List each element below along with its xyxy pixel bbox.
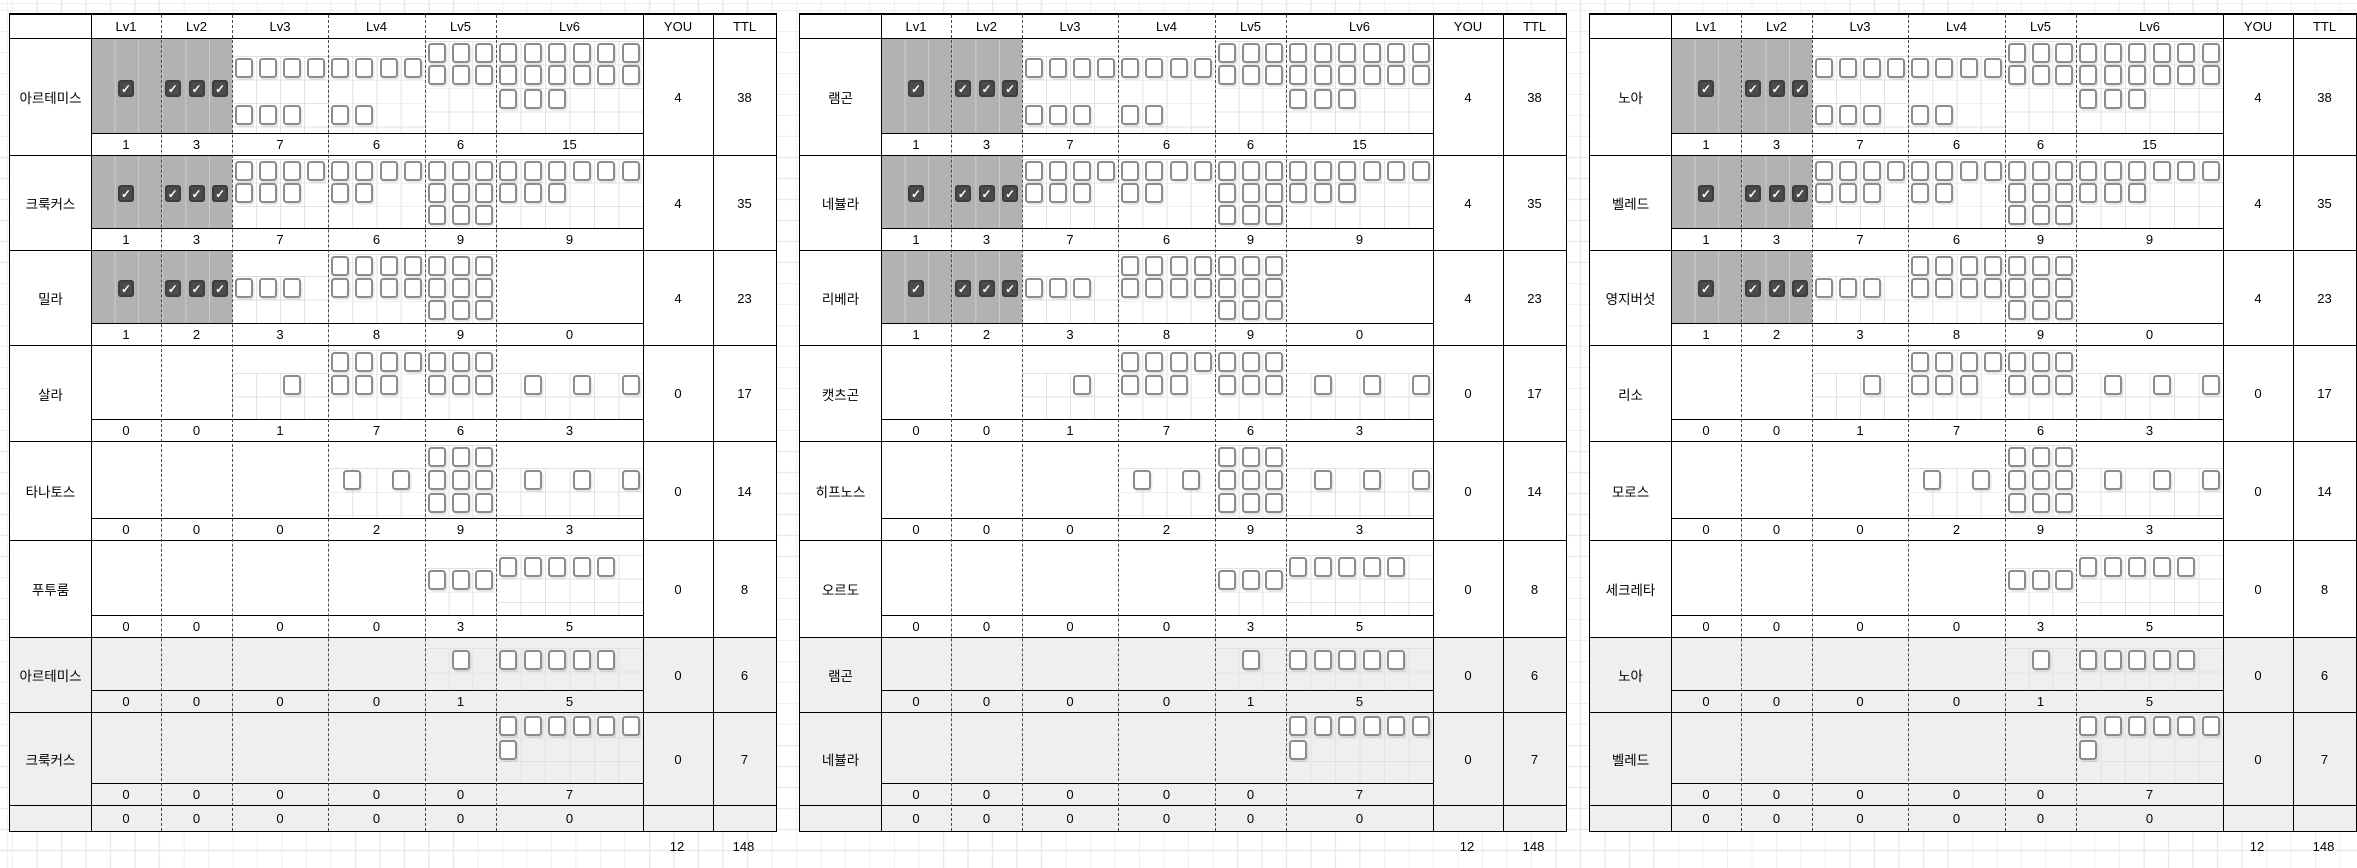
checkbox-unchecked[interactable]: [475, 570, 493, 590]
checkbox-unchecked[interactable]: [1097, 161, 1115, 181]
checkbox-unchecked[interactable]: [622, 716, 640, 736]
checkbox-checked[interactable]: ✓: [212, 185, 228, 202]
checkbox-unchecked[interactable]: [2055, 183, 2073, 203]
checkbox-unchecked[interactable]: [1289, 716, 1307, 736]
checkbox-checked[interactable]: ✓: [908, 80, 924, 97]
checkbox-unchecked[interactable]: [2128, 43, 2146, 63]
checkbox-unchecked[interactable]: [2055, 43, 2073, 63]
checkbox-unchecked[interactable]: [499, 650, 517, 670]
checkbox-unchecked[interactable]: [1242, 375, 1260, 395]
checkbox-unchecked[interactable]: [428, 493, 446, 513]
checkbox-unchecked[interactable]: [1314, 470, 1332, 490]
checkbox-unchecked[interactable]: [307, 161, 325, 181]
checkbox-unchecked[interactable]: [1265, 278, 1283, 298]
checkbox-unchecked[interactable]: [2202, 65, 2220, 85]
checkbox-unchecked[interactable]: [1935, 278, 1953, 298]
checkbox-unchecked[interactable]: [2055, 300, 2073, 320]
checkbox-checked[interactable]: ✓: [955, 280, 971, 297]
checkbox-unchecked[interactable]: [2008, 43, 2026, 63]
checkbox-unchecked[interactable]: [2104, 161, 2122, 181]
checkbox-unchecked[interactable]: [1815, 161, 1833, 181]
checkbox-unchecked[interactable]: [1170, 256, 1188, 276]
checkbox-unchecked[interactable]: [1073, 183, 1091, 203]
checkbox-unchecked[interactable]: [2032, 447, 2050, 467]
checkbox-unchecked[interactable]: [475, 43, 493, 63]
checkbox-unchecked[interactable]: [1145, 183, 1163, 203]
checkbox-unchecked[interactable]: [573, 470, 591, 490]
checkbox-unchecked[interactable]: [2104, 183, 2122, 203]
checkbox-unchecked[interactable]: [1863, 105, 1881, 125]
checkbox-checked[interactable]: ✓: [1698, 280, 1714, 297]
checkbox-unchecked[interactable]: [2079, 557, 2097, 577]
checkbox-unchecked[interactable]: [1289, 557, 1307, 577]
checkbox-unchecked[interactable]: [331, 161, 349, 181]
checkbox-unchecked[interactable]: [1911, 278, 1929, 298]
checkbox-unchecked[interactable]: [1242, 256, 1260, 276]
checkbox-unchecked[interactable]: [1265, 183, 1283, 203]
checkbox-unchecked[interactable]: [475, 65, 493, 85]
checkbox-unchecked[interactable]: [2128, 650, 2146, 670]
checkbox-unchecked[interactable]: [2055, 570, 2073, 590]
checkbox-unchecked[interactable]: [1387, 161, 1405, 181]
checkbox-unchecked[interactable]: [1265, 65, 1283, 85]
checkbox-checked[interactable]: ✓: [908, 185, 924, 202]
checkbox-unchecked[interactable]: [1170, 161, 1188, 181]
checkbox-unchecked[interactable]: [452, 161, 470, 181]
checkbox-unchecked[interactable]: [622, 375, 640, 395]
checkbox-unchecked[interactable]: [1412, 65, 1430, 85]
checkbox-unchecked[interactable]: [1145, 278, 1163, 298]
checkbox-unchecked[interactable]: [380, 352, 398, 372]
checkbox-unchecked[interactable]: [1363, 375, 1381, 395]
checkbox-unchecked[interactable]: [475, 447, 493, 467]
checkbox-unchecked[interactable]: [1839, 105, 1857, 125]
checkbox-unchecked[interactable]: [2153, 650, 2171, 670]
checkbox-unchecked[interactable]: [1265, 161, 1283, 181]
checkbox-unchecked[interactable]: [475, 256, 493, 276]
checkbox-unchecked[interactable]: [2177, 650, 2195, 670]
checkbox-unchecked[interactable]: [2008, 161, 2026, 181]
checkbox-unchecked[interactable]: [475, 205, 493, 225]
checkbox-unchecked[interactable]: [1073, 375, 1091, 395]
checkbox-unchecked[interactable]: [380, 278, 398, 298]
checkbox-checked[interactable]: ✓: [979, 80, 995, 97]
checkbox-checked[interactable]: ✓: [165, 185, 181, 202]
checkbox-unchecked[interactable]: [1025, 105, 1043, 125]
checkbox-unchecked[interactable]: [2008, 570, 2026, 590]
checkbox-unchecked[interactable]: [331, 58, 349, 78]
checkbox-unchecked[interactable]: [2032, 161, 2050, 181]
checkbox-unchecked[interactable]: [428, 375, 446, 395]
checkbox-unchecked[interactable]: [1218, 352, 1236, 372]
checkbox-unchecked[interactable]: [1363, 716, 1381, 736]
checkbox-unchecked[interactable]: [2177, 43, 2195, 63]
checkbox-unchecked[interactable]: [1863, 183, 1881, 203]
checkbox-unchecked[interactable]: [1073, 161, 1091, 181]
checkbox-unchecked[interactable]: [2008, 65, 2026, 85]
checkbox-unchecked[interactable]: [1218, 278, 1236, 298]
checkbox-unchecked[interactable]: [1049, 58, 1067, 78]
checkbox-unchecked[interactable]: [2128, 716, 2146, 736]
checkbox-unchecked[interactable]: [452, 447, 470, 467]
checkbox-unchecked[interactable]: [499, 557, 517, 577]
checkbox-checked[interactable]: ✓: [1769, 80, 1785, 97]
checkbox-unchecked[interactable]: [331, 375, 349, 395]
checkbox-unchecked[interactable]: [259, 183, 277, 203]
checkbox-unchecked[interactable]: [1121, 183, 1139, 203]
checkbox-unchecked[interactable]: [1194, 352, 1212, 372]
checkbox-unchecked[interactable]: [1839, 278, 1857, 298]
checkbox-unchecked[interactable]: [2128, 89, 2146, 109]
checkbox-unchecked[interactable]: [1863, 161, 1881, 181]
checkbox-unchecked[interactable]: [2055, 352, 2073, 372]
checkbox-checked[interactable]: ✓: [212, 280, 228, 297]
checkbox-unchecked[interactable]: [283, 278, 301, 298]
checkbox-unchecked[interactable]: [1242, 570, 1260, 590]
checkbox-unchecked[interactable]: [428, 570, 446, 590]
checkbox-unchecked[interactable]: [1182, 470, 1200, 490]
checkbox-unchecked[interactable]: [1363, 65, 1381, 85]
checkbox-unchecked[interactable]: [2153, 716, 2171, 736]
checkbox-unchecked[interactable]: [1218, 161, 1236, 181]
checkbox-checked[interactable]: ✓: [165, 80, 181, 97]
checkbox-unchecked[interactable]: [1984, 58, 2002, 78]
checkbox-unchecked[interactable]: [355, 375, 373, 395]
checkbox-unchecked[interactable]: [1387, 65, 1405, 85]
checkbox-unchecked[interactable]: [1218, 375, 1236, 395]
checkbox-unchecked[interactable]: [2032, 205, 2050, 225]
checkbox-unchecked[interactable]: [1387, 716, 1405, 736]
checkbox-unchecked[interactable]: [1289, 89, 1307, 109]
checkbox-unchecked[interactable]: [452, 352, 470, 372]
checkbox-unchecked[interactable]: [1242, 470, 1260, 490]
checkbox-unchecked[interactable]: [1412, 43, 1430, 63]
checkbox-unchecked[interactable]: [428, 183, 446, 203]
checkbox-unchecked[interactable]: [428, 278, 446, 298]
checkbox-unchecked[interactable]: [1363, 557, 1381, 577]
checkbox-unchecked[interactable]: [259, 278, 277, 298]
checkbox-unchecked[interactable]: [1314, 161, 1332, 181]
checkbox-unchecked[interactable]: [1960, 161, 1978, 181]
checkbox-unchecked[interactable]: [2032, 375, 2050, 395]
checkbox-checked[interactable]: ✓: [1745, 280, 1761, 297]
checkbox-unchecked[interactable]: [2153, 65, 2171, 85]
checkbox-unchecked[interactable]: [1121, 352, 1139, 372]
checkbox-checked[interactable]: ✓: [1769, 280, 1785, 297]
checkbox-unchecked[interactable]: [1412, 161, 1430, 181]
checkbox-unchecked[interactable]: [499, 183, 517, 203]
checkbox-unchecked[interactable]: [2079, 183, 2097, 203]
checkbox-unchecked[interactable]: [1984, 278, 2002, 298]
checkbox-unchecked[interactable]: [404, 278, 422, 298]
checkbox-unchecked[interactable]: [622, 161, 640, 181]
checkbox-unchecked[interactable]: [1338, 183, 1356, 203]
checkbox-unchecked[interactable]: [452, 183, 470, 203]
checkbox-unchecked[interactable]: [524, 375, 542, 395]
checkbox-unchecked[interactable]: [1863, 375, 1881, 395]
checkbox-unchecked[interactable]: [2128, 557, 2146, 577]
checkbox-unchecked[interactable]: [548, 557, 566, 577]
checkbox-unchecked[interactable]: [392, 470, 410, 490]
checkbox-unchecked[interactable]: [1863, 58, 1881, 78]
checkbox-unchecked[interactable]: [1097, 58, 1115, 78]
checkbox-unchecked[interactable]: [2202, 43, 2220, 63]
checkbox-checked[interactable]: ✓: [955, 185, 971, 202]
checkbox-unchecked[interactable]: [428, 256, 446, 276]
checkbox-unchecked[interactable]: [452, 570, 470, 590]
checkbox-unchecked[interactable]: [1049, 278, 1067, 298]
checkbox-unchecked[interactable]: [1935, 183, 1953, 203]
checkbox-unchecked[interactable]: [1145, 375, 1163, 395]
checkbox-unchecked[interactable]: [1815, 183, 1833, 203]
checkbox-unchecked[interactable]: [2032, 300, 2050, 320]
checkbox-unchecked[interactable]: [235, 58, 253, 78]
checkbox-unchecked[interactable]: [1073, 105, 1091, 125]
checkbox-unchecked[interactable]: [1911, 161, 1929, 181]
checkbox-unchecked[interactable]: [331, 352, 349, 372]
checkbox-unchecked[interactable]: [597, 65, 615, 85]
checkbox-unchecked[interactable]: [1242, 650, 1260, 670]
checkbox-unchecked[interactable]: [1984, 352, 2002, 372]
checkbox-unchecked[interactable]: [548, 183, 566, 203]
checkbox-unchecked[interactable]: [1363, 650, 1381, 670]
checkbox-unchecked[interactable]: [499, 43, 517, 63]
checkbox-unchecked[interactable]: [524, 65, 542, 85]
checkbox-unchecked[interactable]: [2104, 557, 2122, 577]
checkbox-unchecked[interactable]: [2104, 716, 2122, 736]
checkbox-unchecked[interactable]: [1194, 278, 1212, 298]
checkbox-unchecked[interactable]: [428, 161, 446, 181]
checkbox-unchecked[interactable]: [355, 278, 373, 298]
checkbox-unchecked[interactable]: [1218, 300, 1236, 320]
checkbox-unchecked[interactable]: [2104, 650, 2122, 670]
checkbox-unchecked[interactable]: [2032, 65, 2050, 85]
checkbox-unchecked[interactable]: [1170, 58, 1188, 78]
checkbox-unchecked[interactable]: [1242, 161, 1260, 181]
checkbox-unchecked[interactable]: [597, 161, 615, 181]
checkbox-unchecked[interactable]: [548, 65, 566, 85]
checkbox-unchecked[interactable]: [452, 493, 470, 513]
checkbox-unchecked[interactable]: [1265, 447, 1283, 467]
checkbox-unchecked[interactable]: [428, 447, 446, 467]
checkbox-unchecked[interactable]: [1049, 161, 1067, 181]
checkbox-unchecked[interactable]: [1218, 43, 1236, 63]
checkbox-unchecked[interactable]: [1242, 65, 1260, 85]
checkbox-unchecked[interactable]: [2079, 161, 2097, 181]
checkbox-unchecked[interactable]: [524, 470, 542, 490]
checkbox-checked[interactable]: ✓: [118, 280, 134, 297]
checkbox-unchecked[interactable]: [2153, 161, 2171, 181]
checkbox-unchecked[interactable]: [452, 205, 470, 225]
checkbox-unchecked[interactable]: [573, 43, 591, 63]
checkbox-unchecked[interactable]: [475, 375, 493, 395]
checkbox-unchecked[interactable]: [2055, 256, 2073, 276]
checkbox-unchecked[interactable]: [1121, 161, 1139, 181]
checkbox-unchecked[interactable]: [1387, 557, 1405, 577]
checkbox-unchecked[interactable]: [499, 89, 517, 109]
checkbox-unchecked[interactable]: [452, 300, 470, 320]
checkbox-checked[interactable]: ✓: [979, 280, 995, 297]
checkbox-unchecked[interactable]: [2177, 161, 2195, 181]
checkbox-unchecked[interactable]: [1984, 161, 2002, 181]
checkbox-unchecked[interactable]: [1218, 65, 1236, 85]
checkbox-unchecked[interactable]: [1363, 43, 1381, 63]
checkbox-unchecked[interactable]: [1911, 183, 1929, 203]
checkbox-unchecked[interactable]: [1911, 256, 1929, 276]
checkbox-unchecked[interactable]: [1242, 43, 1260, 63]
checkbox-unchecked[interactable]: [331, 278, 349, 298]
checkbox-unchecked[interactable]: [1265, 205, 1283, 225]
checkbox-unchecked[interactable]: [2032, 650, 2050, 670]
checkbox-unchecked[interactable]: [1911, 352, 1929, 372]
checkbox-unchecked[interactable]: [1265, 352, 1283, 372]
checkbox-checked[interactable]: ✓: [1792, 80, 1808, 97]
checkbox-unchecked[interactable]: [2104, 43, 2122, 63]
checkbox-unchecked[interactable]: [1960, 58, 1978, 78]
checkbox-unchecked[interactable]: [331, 183, 349, 203]
checkbox-unchecked[interactable]: [573, 65, 591, 85]
checkbox-unchecked[interactable]: [235, 278, 253, 298]
checkbox-unchecked[interactable]: [283, 161, 301, 181]
checkbox-unchecked[interactable]: [548, 43, 566, 63]
checkbox-unchecked[interactable]: [2008, 278, 2026, 298]
checkbox-unchecked[interactable]: [2008, 183, 2026, 203]
checkbox-unchecked[interactable]: [1960, 256, 1978, 276]
checkbox-unchecked[interactable]: [1338, 65, 1356, 85]
checkbox-checked[interactable]: ✓: [1745, 185, 1761, 202]
checkbox-unchecked[interactable]: [499, 716, 517, 736]
checkbox-unchecked[interactable]: [404, 352, 422, 372]
checkbox-unchecked[interactable]: [524, 161, 542, 181]
checkbox-unchecked[interactable]: [1121, 58, 1139, 78]
checkbox-unchecked[interactable]: [2055, 493, 2073, 513]
checkbox-unchecked[interactable]: [428, 352, 446, 372]
checkbox-checked[interactable]: ✓: [1792, 185, 1808, 202]
checkbox-checked[interactable]: ✓: [1769, 185, 1785, 202]
checkbox-unchecked[interactable]: [1265, 375, 1283, 395]
checkbox-unchecked[interactable]: [2055, 447, 2073, 467]
checkbox-unchecked[interactable]: [1145, 161, 1163, 181]
checkbox-unchecked[interactable]: [380, 58, 398, 78]
checkbox-unchecked[interactable]: [622, 470, 640, 490]
checkbox-unchecked[interactable]: [452, 650, 470, 670]
checkbox-checked[interactable]: ✓: [118, 80, 134, 97]
checkbox-unchecked[interactable]: [1887, 161, 1905, 181]
checkbox-unchecked[interactable]: [1972, 470, 1990, 490]
checkbox-unchecked[interactable]: [2177, 557, 2195, 577]
checkbox-unchecked[interactable]: [524, 89, 542, 109]
checkbox-unchecked[interactable]: [2055, 375, 2073, 395]
checkbox-unchecked[interactable]: [2032, 183, 2050, 203]
checkbox-unchecked[interactable]: [428, 205, 446, 225]
checkbox-unchecked[interactable]: [1218, 447, 1236, 467]
checkbox-unchecked[interactable]: [1289, 43, 1307, 63]
checkbox-unchecked[interactable]: [475, 161, 493, 181]
checkbox-unchecked[interactable]: [331, 256, 349, 276]
checkbox-unchecked[interactable]: [597, 43, 615, 63]
checkbox-checked[interactable]: ✓: [118, 185, 134, 202]
checkbox-unchecked[interactable]: [2032, 256, 2050, 276]
checkbox-unchecked[interactable]: [573, 557, 591, 577]
checkbox-unchecked[interactable]: [259, 161, 277, 181]
checkbox-checked[interactable]: ✓: [1002, 280, 1018, 297]
checkbox-unchecked[interactable]: [597, 650, 615, 670]
checkbox-unchecked[interactable]: [331, 105, 349, 125]
checkbox-checked[interactable]: ✓: [1792, 280, 1808, 297]
checkbox-unchecked[interactable]: [2008, 205, 2026, 225]
checkbox-unchecked[interactable]: [452, 278, 470, 298]
checkbox-unchecked[interactable]: [1935, 105, 1953, 125]
checkbox-unchecked[interactable]: [475, 183, 493, 203]
checkbox-unchecked[interactable]: [1314, 650, 1332, 670]
checkbox-unchecked[interactable]: [235, 105, 253, 125]
checkbox-unchecked[interactable]: [1242, 447, 1260, 467]
checkbox-unchecked[interactable]: [2153, 43, 2171, 63]
checkbox-unchecked[interactable]: [235, 183, 253, 203]
checkbox-unchecked[interactable]: [1049, 105, 1067, 125]
checkbox-unchecked[interactable]: [428, 470, 446, 490]
checkbox-unchecked[interactable]: [1412, 716, 1430, 736]
checkbox-unchecked[interactable]: [1887, 58, 1905, 78]
checkbox-unchecked[interactable]: [2202, 375, 2220, 395]
checkbox-unchecked[interactable]: [2032, 493, 2050, 513]
checkbox-unchecked[interactable]: [259, 105, 277, 125]
checkbox-unchecked[interactable]: [1218, 205, 1236, 225]
checkbox-unchecked[interactable]: [1265, 493, 1283, 513]
checkbox-unchecked[interactable]: [1338, 89, 1356, 109]
checkbox-unchecked[interactable]: [428, 43, 446, 63]
checkbox-unchecked[interactable]: [1265, 570, 1283, 590]
checkbox-unchecked[interactable]: [1314, 375, 1332, 395]
checkbox-unchecked[interactable]: [524, 43, 542, 63]
checkbox-unchecked[interactable]: [1242, 205, 1260, 225]
checkbox-unchecked[interactable]: [2079, 43, 2097, 63]
checkbox-unchecked[interactable]: [1265, 256, 1283, 276]
checkbox-unchecked[interactable]: [2032, 352, 2050, 372]
checkbox-unchecked[interactable]: [1815, 58, 1833, 78]
checkbox-unchecked[interactable]: [452, 256, 470, 276]
checkbox-unchecked[interactable]: [452, 470, 470, 490]
checkbox-unchecked[interactable]: [1218, 256, 1236, 276]
checkbox-unchecked[interactable]: [622, 43, 640, 63]
checkbox-unchecked[interactable]: [1935, 375, 1953, 395]
checkbox-unchecked[interactable]: [548, 716, 566, 736]
checkbox-unchecked[interactable]: [2008, 493, 2026, 513]
checkbox-unchecked[interactable]: [1815, 105, 1833, 125]
checkbox-unchecked[interactable]: [2032, 43, 2050, 63]
checkbox-unchecked[interactable]: [2055, 205, 2073, 225]
checkbox-unchecked[interactable]: [548, 161, 566, 181]
checkbox-unchecked[interactable]: [2202, 161, 2220, 181]
checkbox-unchecked[interactable]: [2032, 470, 2050, 490]
checkbox-unchecked[interactable]: [524, 650, 542, 670]
checkbox-unchecked[interactable]: [2153, 470, 2171, 490]
checkbox-checked[interactable]: ✓: [1745, 80, 1761, 97]
checkbox-unchecked[interactable]: [524, 557, 542, 577]
checkbox-unchecked[interactable]: [1338, 650, 1356, 670]
checkbox-unchecked[interactable]: [1289, 65, 1307, 85]
checkbox-unchecked[interactable]: [1387, 650, 1405, 670]
checkbox-checked[interactable]: ✓: [1002, 185, 1018, 202]
checkbox-checked[interactable]: ✓: [955, 80, 971, 97]
checkbox-unchecked[interactable]: [1387, 43, 1405, 63]
checkbox-checked[interactable]: ✓: [979, 185, 995, 202]
checkbox-unchecked[interactable]: [355, 105, 373, 125]
checkbox-unchecked[interactable]: [235, 161, 253, 181]
checkbox-unchecked[interactable]: [355, 352, 373, 372]
checkbox-unchecked[interactable]: [1338, 161, 1356, 181]
checkbox-unchecked[interactable]: [2079, 65, 2097, 85]
